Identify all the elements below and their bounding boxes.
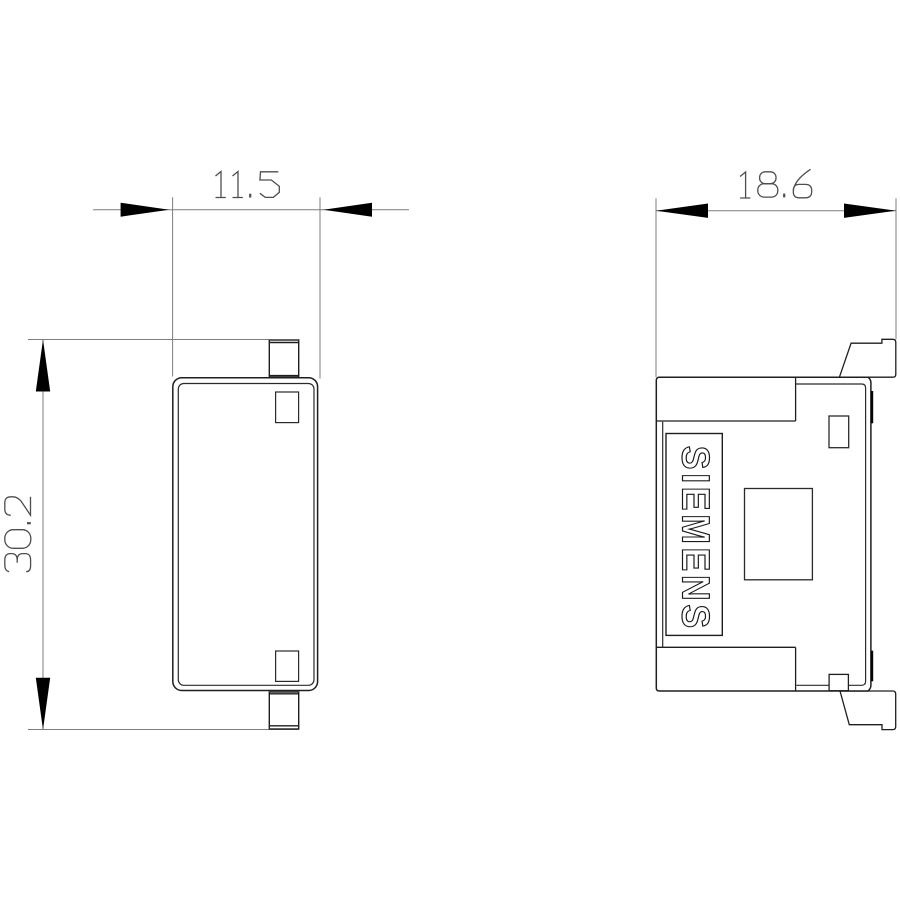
svg-text:SIEMENS: SIEMENS — [673, 446, 716, 632]
